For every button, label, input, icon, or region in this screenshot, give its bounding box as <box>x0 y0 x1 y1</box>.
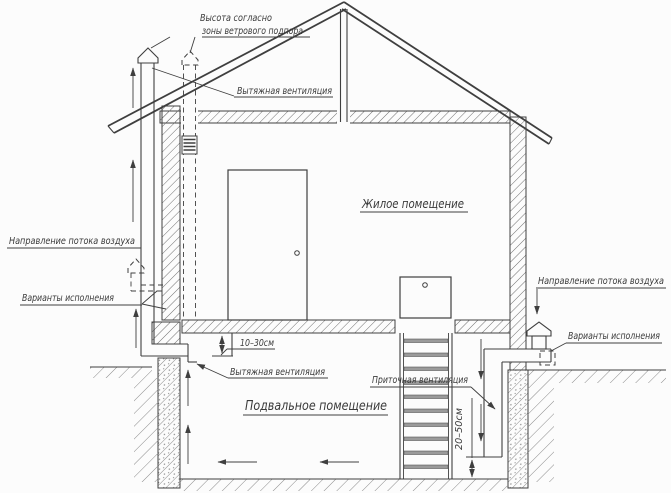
label-dim-floor-gap: 10–30см <box>240 338 274 349</box>
label-wind-zone-height-line1: Высота согласно <box>200 13 272 24</box>
label-exhaust-vent-bottom: Вытяжная вентиляция <box>230 367 325 378</box>
label-variants-left: Варианты исполнения <box>22 293 114 304</box>
duct-gap-right-wall <box>508 349 528 362</box>
ventilation-diagram: Высота согласно зоны ветрового подпора В… <box>0 0 671 493</box>
ridge-exhaust-duct <box>341 9 348 122</box>
label-dim-supply-gap: 20–50см <box>454 408 465 450</box>
stair-rungs <box>404 339 448 469</box>
interior-exhaust-duct-variant <box>182 51 198 319</box>
supply-vent-body <box>532 336 546 349</box>
exhaust-grille <box>182 136 197 154</box>
leader-lines <box>7 37 666 415</box>
supply-vent-variant-dashed <box>540 351 555 365</box>
basement-floor <box>180 479 508 491</box>
label-wind-zone-height-line2: зоны ветрового подпора <box>202 26 303 37</box>
right-wall <box>508 117 528 488</box>
right-eave-cap <box>549 138 552 144</box>
label-airflow-left: Направление потока воздуха <box>9 236 135 247</box>
basement-stairs <box>400 333 452 479</box>
label-supply-vent: Приточная вентиляция <box>372 375 468 386</box>
supply-vent-cap <box>527 322 551 336</box>
room-door <box>228 170 307 320</box>
label-living-room: Жилое помещение <box>361 197 464 211</box>
exhaust-intake-mouth <box>188 333 233 362</box>
diagram-canvas: Высота согласно зоны ветрового подпора В… <box>0 0 671 493</box>
left-eave-cap <box>108 126 114 133</box>
duct-gap-ridge <box>337 110 350 124</box>
attic-ceiling-slab <box>160 111 510 123</box>
dimension-20-50 <box>466 398 486 477</box>
interfloor-slab <box>182 320 510 333</box>
label-variants-right: Варианты исполнения <box>568 331 660 342</box>
wall-vent-variant-left <box>128 259 163 291</box>
label-airflow-right: Направление потока воздуха <box>538 276 664 287</box>
chimney-cap-dashed <box>182 51 198 65</box>
chimney-cap <box>138 48 158 63</box>
basement-hatch-door <box>400 277 451 318</box>
labels: Высота согласно зоны ветрового подпора В… <box>9 13 664 450</box>
label-exhaust-vent-top: Вытяжная вентиляция <box>237 86 332 97</box>
label-basement: Подвальное помещение <box>245 399 387 414</box>
